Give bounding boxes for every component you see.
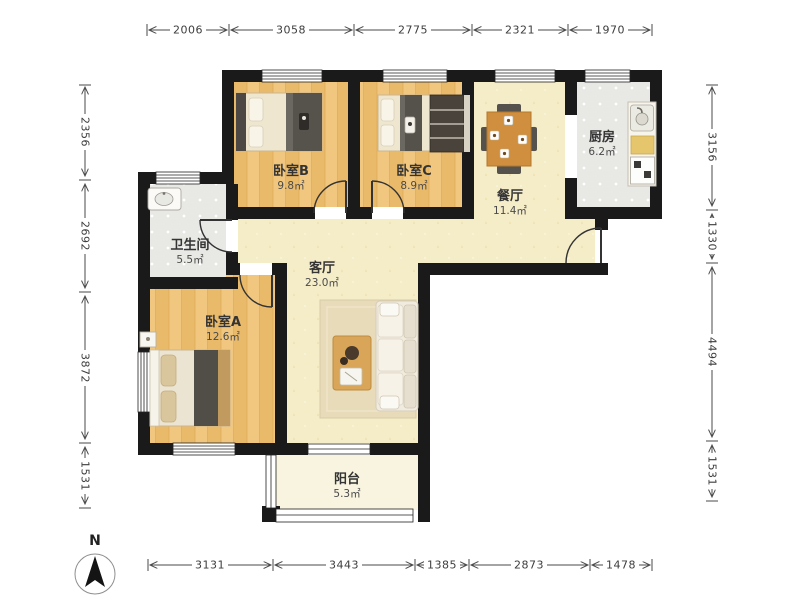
wall-segment	[565, 82, 577, 115]
dining-table-icon	[481, 104, 537, 174]
wall-segment	[418, 263, 608, 275]
balcony-floor	[276, 455, 418, 510]
balcony-sliding-door	[308, 444, 370, 454]
wall-segment	[346, 207, 372, 219]
wall-segment	[322, 70, 383, 82]
wall-segment	[370, 443, 418, 455]
window-bathroom	[156, 172, 200, 184]
balcony-glass-bottom	[276, 509, 413, 522]
nightstand-icon	[140, 332, 156, 347]
washbasin-icon	[148, 188, 181, 210]
wall-segment	[138, 443, 173, 455]
wall-segment	[226, 263, 240, 275]
wall-segment	[222, 70, 234, 184]
wall-segment	[555, 70, 585, 82]
wall-segment	[226, 207, 315, 219]
wall-segment	[565, 207, 662, 219]
wall-segment	[447, 70, 495, 82]
floor-plan-svg	[0, 0, 800, 600]
bed-c-icon	[378, 95, 436, 151]
sink-icon	[631, 105, 654, 131]
kitchen-counter-icon	[628, 102, 656, 186]
hall-floor	[238, 219, 595, 263]
bed-b-icon	[236, 93, 322, 151]
wall-segment	[235, 443, 276, 455]
bed-a-icon	[150, 350, 230, 426]
window-dining	[495, 70, 555, 82]
floor-plan-image: 卧室B 9.8㎡ 卧室C 8.9㎡ 餐厅 11.4㎡ 厨房 6.2㎡ 卫生间 5…	[0, 0, 800, 600]
window-kitchen	[585, 70, 630, 82]
wall-segment	[138, 277, 238, 289]
stove-icon	[631, 157, 655, 184]
sofa-icon	[376, 301, 418, 411]
wall-segment	[418, 263, 430, 522]
wall-segment	[276, 443, 308, 455]
wall-segment	[348, 82, 360, 207]
coffee-table-icon	[333, 336, 371, 390]
balcony-glass-left	[266, 455, 276, 508]
window-bedroom-a-bottom	[173, 443, 235, 455]
wall-segment	[275, 263, 287, 455]
window-bedroom-b	[262, 70, 322, 82]
compass-icon	[75, 554, 115, 594]
window-bedroom-a-left	[138, 352, 150, 412]
window-bedroom-c	[383, 70, 447, 82]
cutting-board-icon	[631, 136, 654, 154]
wall-segment	[200, 172, 234, 184]
wardrobe-icon	[430, 95, 470, 152]
